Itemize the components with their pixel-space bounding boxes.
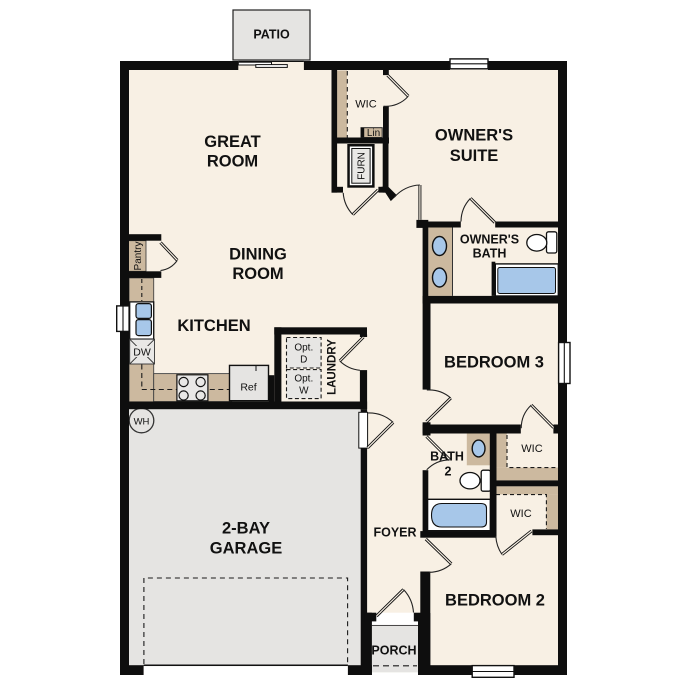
- svg-text:DW: DW: [133, 346, 151, 358]
- svg-text:LAUNDRY: LAUNDRY: [327, 339, 339, 395]
- svg-text:BATH: BATH: [473, 247, 507, 261]
- svg-text:Pantry: Pantry: [133, 242, 144, 271]
- svg-text:DINING: DINING: [229, 246, 287, 264]
- svg-text:2: 2: [445, 465, 452, 479]
- svg-text:Opt.: Opt.: [294, 374, 313, 385]
- svg-text:ROOM: ROOM: [207, 153, 258, 171]
- svg-text:GREAT: GREAT: [204, 133, 261, 151]
- svg-text:WIC: WIC: [521, 443, 542, 455]
- svg-text:W: W: [299, 386, 309, 397]
- svg-text:FURN: FURN: [357, 152, 368, 180]
- svg-text:GARAGE: GARAGE: [210, 540, 282, 558]
- svg-text:WIC: WIC: [355, 99, 376, 111]
- svg-text:WH: WH: [134, 417, 150, 428]
- svg-text:BEDROOM 3: BEDROOM 3: [444, 354, 544, 372]
- svg-text:PORCH: PORCH: [371, 644, 416, 658]
- svg-text:Opt.: Opt.: [294, 343, 313, 354]
- svg-text:OWNER'S: OWNER'S: [435, 127, 513, 145]
- svg-text:2-BAY: 2-BAY: [222, 520, 270, 538]
- svg-text:BATH: BATH: [430, 450, 464, 464]
- svg-text:D: D: [300, 355, 307, 366]
- svg-text:Ref: Ref: [240, 382, 256, 394]
- svg-text:FOYER: FOYER: [373, 525, 416, 539]
- svg-text:WIC: WIC: [510, 508, 531, 520]
- svg-text:ROOM: ROOM: [232, 265, 283, 283]
- svg-text:BEDROOM 2: BEDROOM 2: [445, 592, 545, 610]
- svg-text:Lin: Lin: [367, 128, 380, 139]
- svg-text:KITCHEN: KITCHEN: [177, 317, 250, 335]
- svg-text:SUITE: SUITE: [450, 147, 499, 165]
- svg-text:PATIO: PATIO: [253, 28, 290, 42]
- svg-text:OWNER'S: OWNER'S: [460, 233, 519, 247]
